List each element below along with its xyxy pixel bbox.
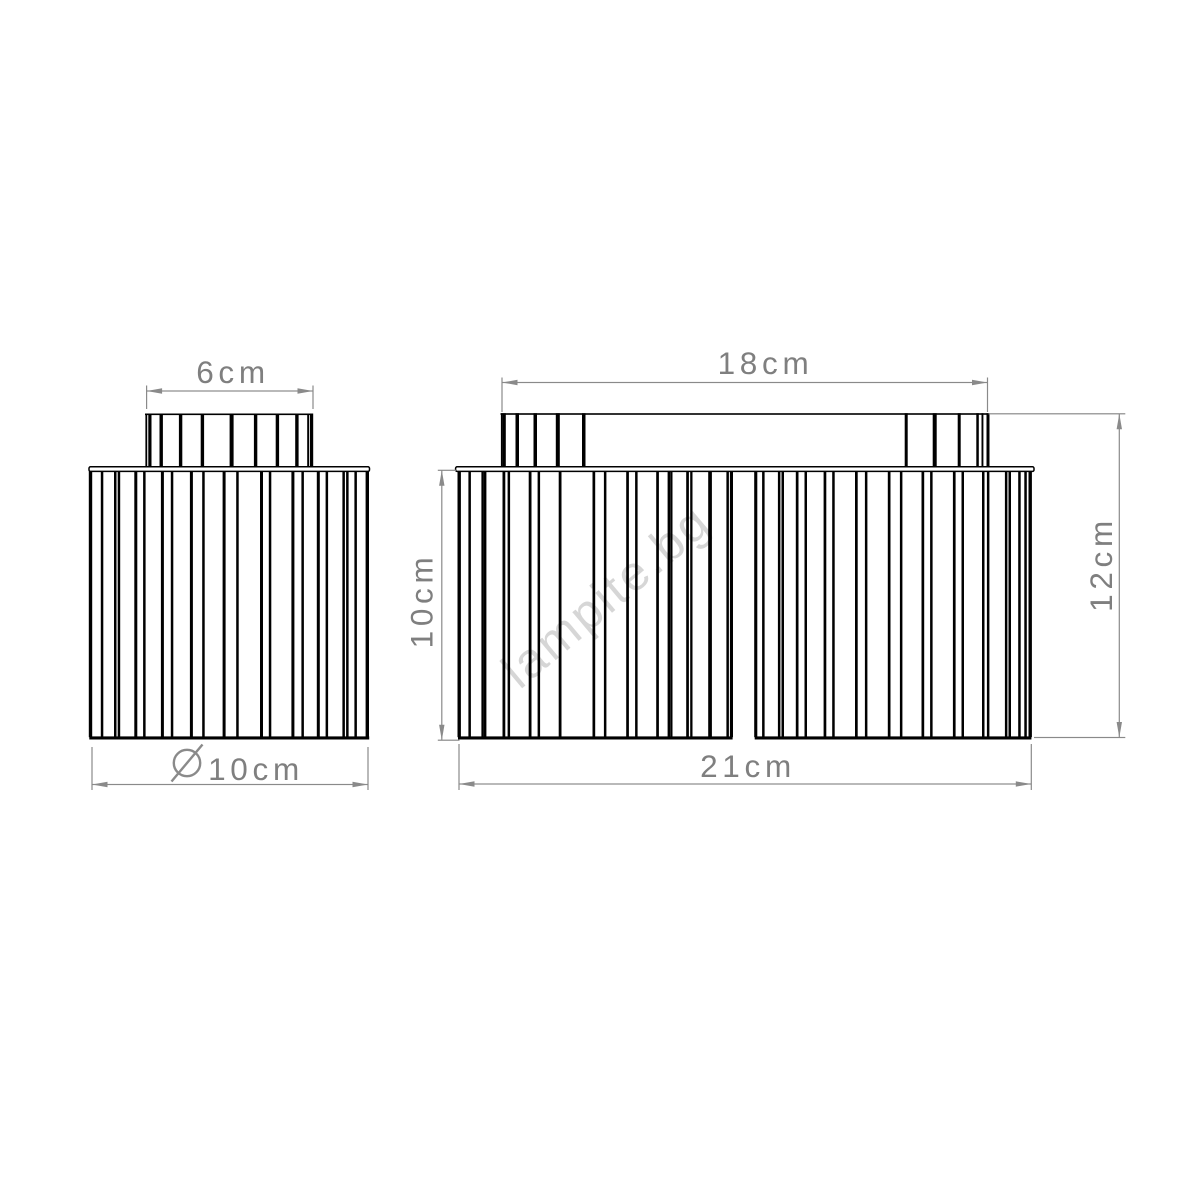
svg-text:10cm: 10cm	[404, 553, 440, 649]
svg-text:21cm: 21cm	[700, 748, 796, 784]
svg-text:6cm: 6cm	[196, 354, 270, 390]
svg-text:18cm: 18cm	[718, 345, 814, 381]
svg-text:10cm: 10cm	[208, 751, 304, 787]
svg-text:12cm: 12cm	[1083, 516, 1119, 612]
